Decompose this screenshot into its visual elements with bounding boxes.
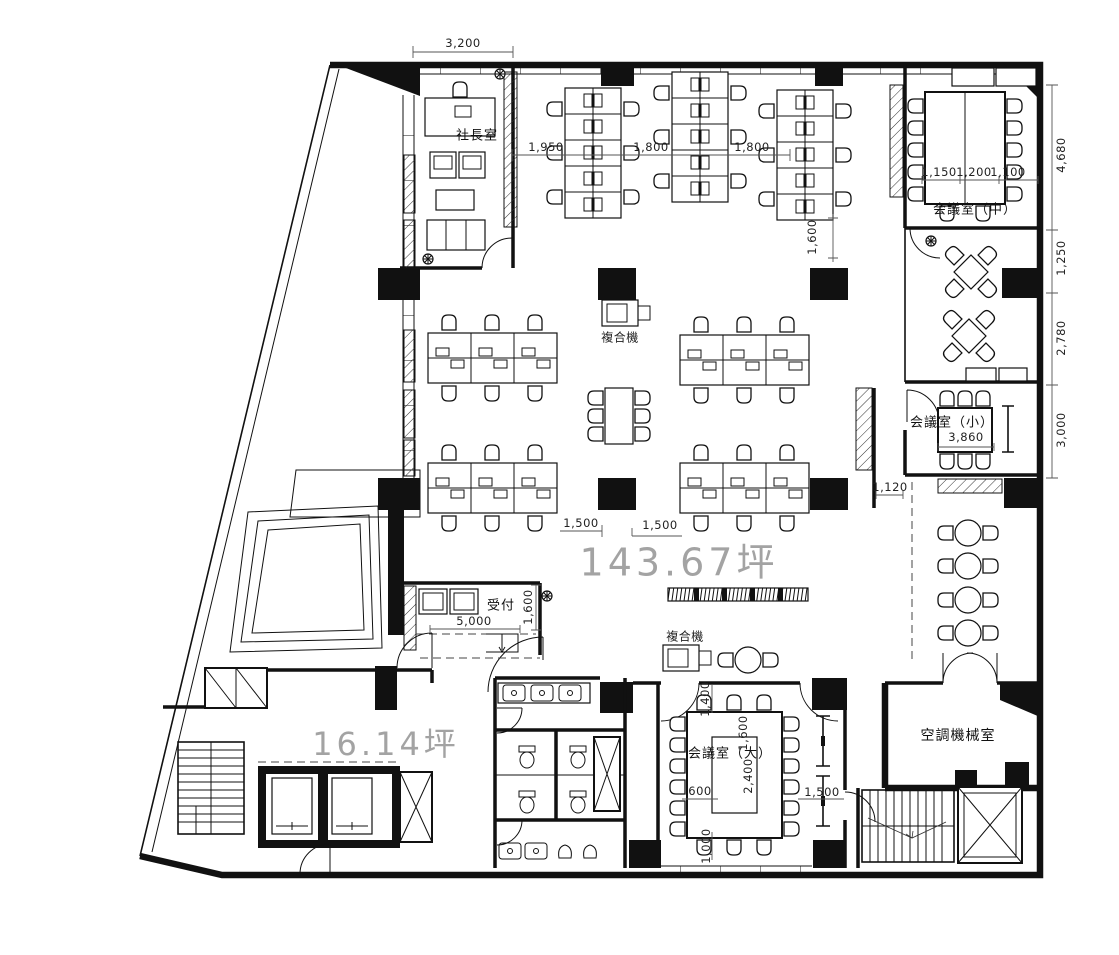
room-label-meeting-s: 会議室（小）: [910, 412, 994, 431]
dim-1000: 1,000: [699, 828, 713, 863]
dim-1500-a: 1,500: [563, 516, 598, 530]
scale-bar: [668, 588, 808, 601]
elevators: [258, 766, 400, 848]
dim-1150: 1,150: [921, 165, 956, 179]
dim-1800-b: 1,800: [734, 140, 769, 154]
core-east: [858, 787, 1022, 868]
label-copier-mid: 複合機: [601, 329, 639, 346]
dim-1600-mtgl: 1,600: [736, 715, 750, 750]
room-label-hvac: 空調機械室: [921, 725, 996, 745]
dim-1400: 1,400: [698, 681, 712, 716]
room-lounge: [905, 228, 1040, 382]
dim-1800-a: 1,800: [633, 140, 668, 154]
area-label-core: 16.14坪: [312, 719, 460, 765]
dim-1250: 1,250: [1054, 240, 1068, 275]
label-copier-south: 複合機: [666, 628, 704, 645]
dim-3000: 3,000: [1054, 412, 1068, 447]
dim-1120: 1,120: [872, 480, 907, 494]
floor-plan: 社長室 会議室（中） 会議室（小） 会議室（大） 空調機械室 受付 複合機 複合…: [0, 0, 1119, 955]
stairs-west: [178, 742, 244, 834]
room-label-reception: 受付: [487, 595, 515, 614]
dim-5000: 5,000: [456, 614, 491, 628]
dim-3860: 3,860: [948, 430, 983, 444]
dim-600: 600: [688, 784, 711, 798]
dim-4680: 4,680: [1054, 137, 1068, 172]
room-label-meeting-m: 会議室（中）: [933, 199, 1017, 218]
area-label-office: 143.67坪: [580, 532, 779, 587]
room-president: [400, 65, 517, 268]
elevator-shaft: [958, 787, 1022, 863]
stairs-east: [862, 790, 954, 862]
room-meeting-m: [890, 65, 1040, 258]
dim-2780: 2,780: [1054, 320, 1068, 355]
dim-3200: 3,200: [445, 36, 480, 50]
dim-1600-desk: 1,600: [805, 219, 819, 254]
dim-1100: 1,100: [990, 165, 1025, 179]
dim-2400: 2,400: [741, 758, 755, 793]
dim-1200: 1,200: [956, 165, 991, 179]
room-label-president: 社長室: [456, 125, 498, 144]
dim-1950: 1,950: [528, 140, 563, 154]
dim-1600-reception: 1,600: [521, 589, 535, 624]
room-label-meeting-l: 会議室（大）: [688, 743, 772, 762]
dim-1500-b: 1,500: [642, 518, 677, 532]
dim-1500-c: 1,500: [804, 785, 839, 799]
